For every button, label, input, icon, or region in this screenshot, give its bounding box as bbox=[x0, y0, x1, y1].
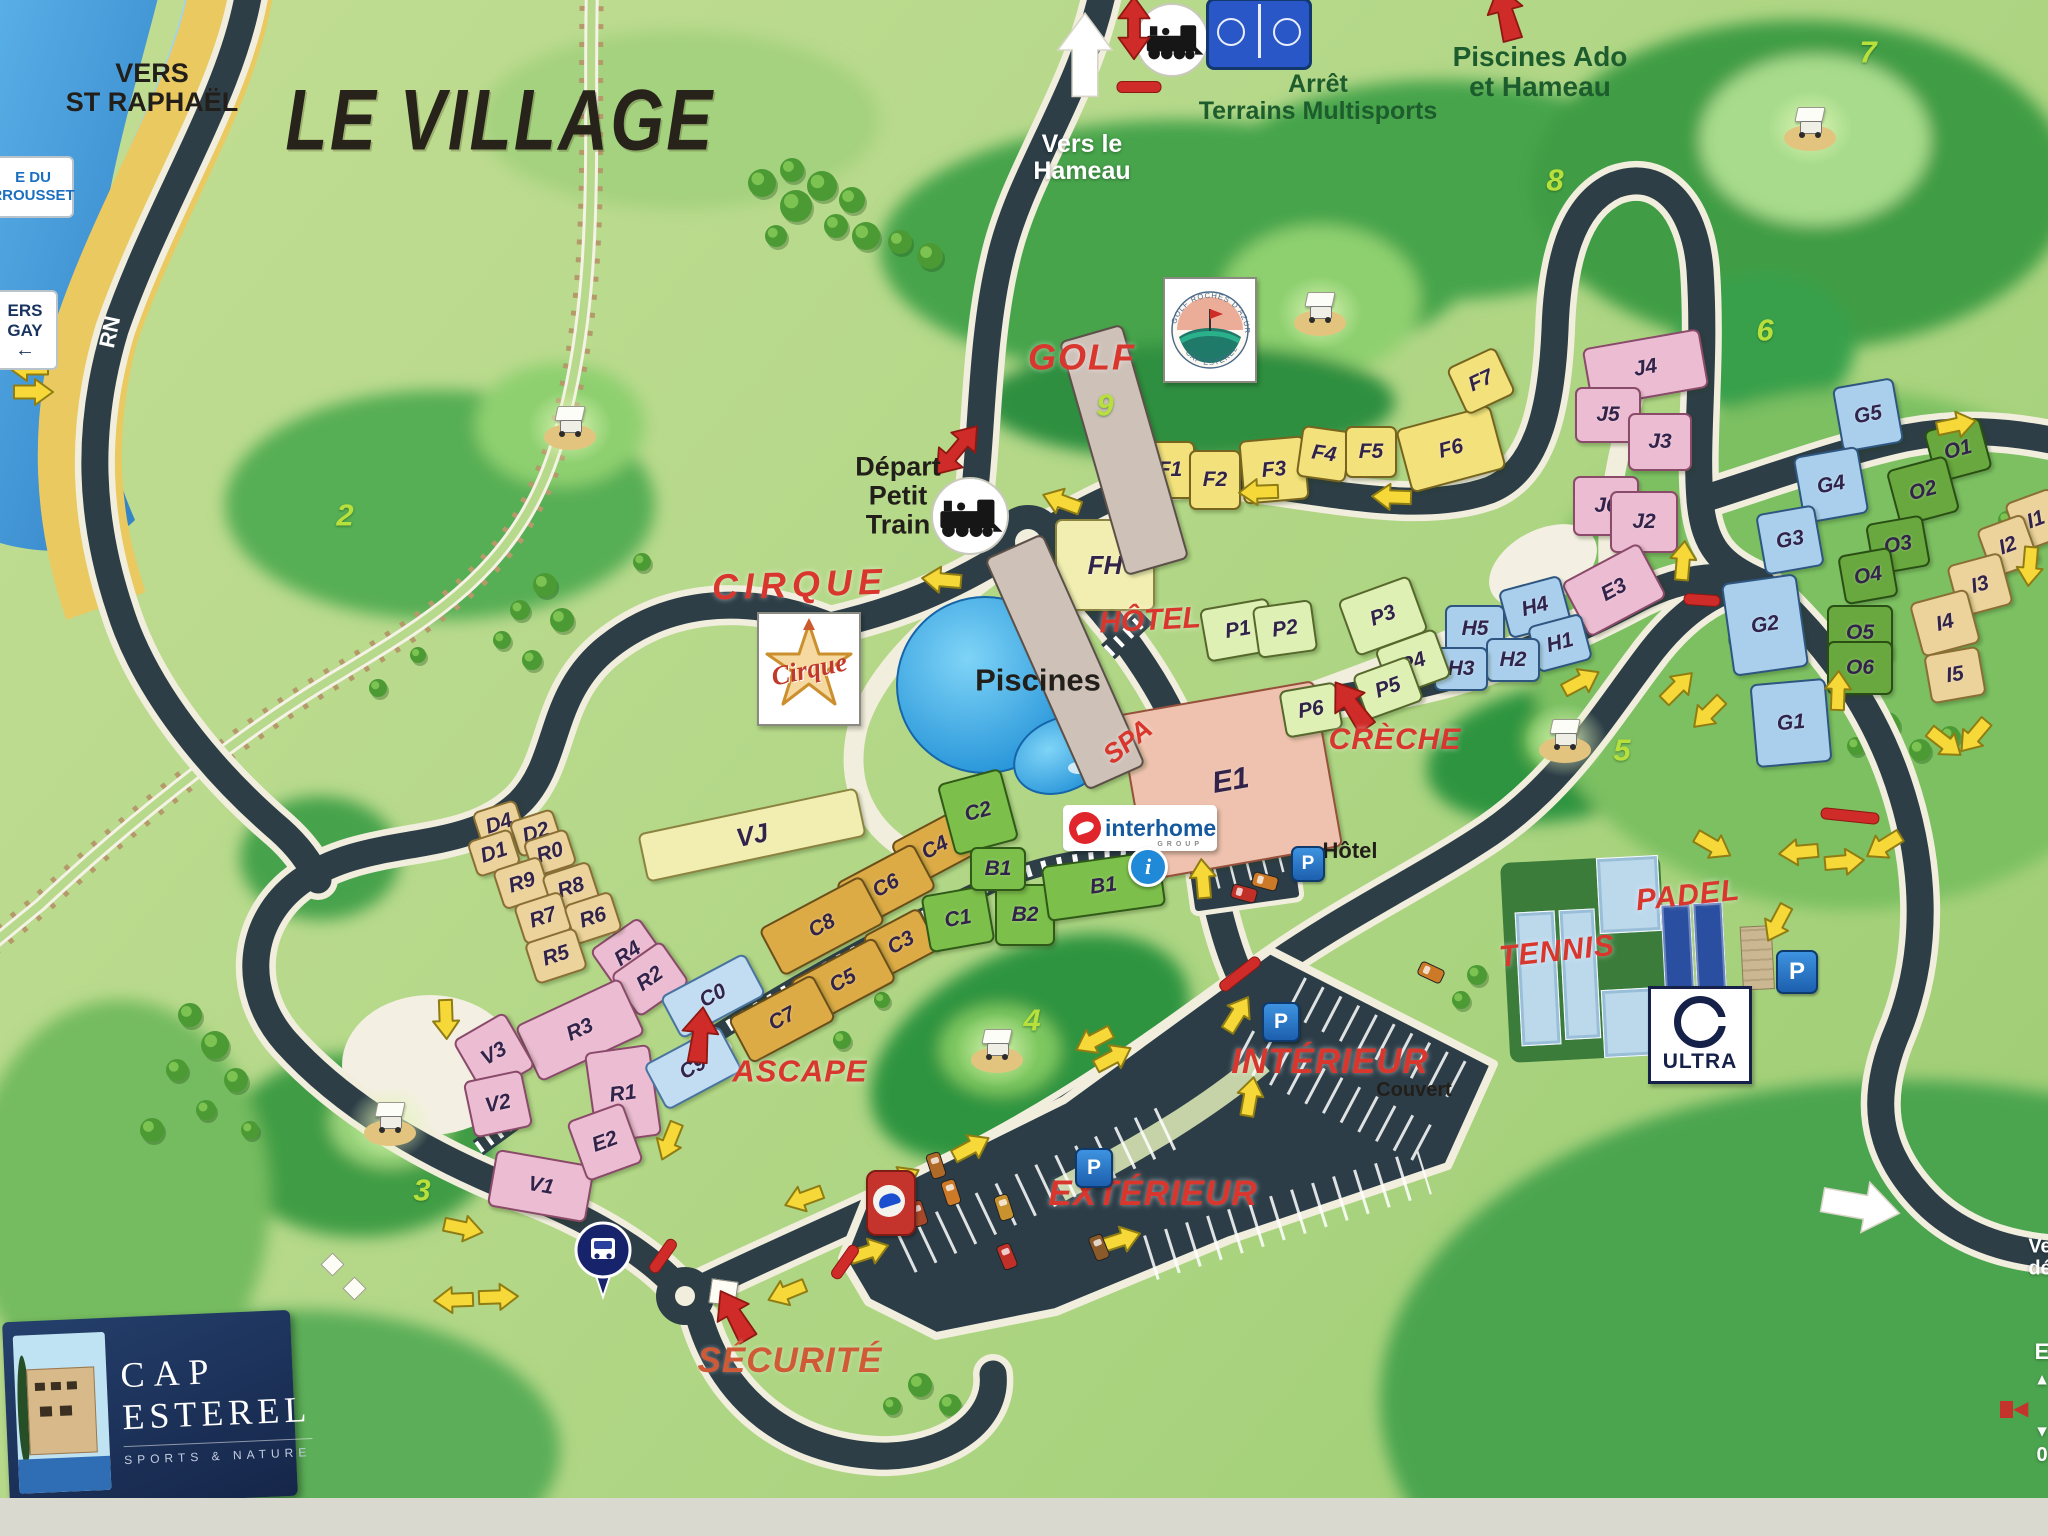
golf-hole-3: 3 bbox=[413, 1173, 430, 1206]
building-label: G2 bbox=[1749, 611, 1780, 639]
building-label: V1 bbox=[526, 1172, 555, 1200]
cap-esterel-logo: CAP ESTEREL SPORTS & NATURE bbox=[2, 1310, 298, 1508]
label-edge-up: ▲ bbox=[2034, 1371, 2048, 1388]
label-edge-zero: 0 bbox=[2036, 1445, 2047, 1467]
building-label: F2 bbox=[1203, 468, 1228, 492]
building-G5: G5 bbox=[1832, 377, 1905, 453]
label-couvert: Couvert bbox=[1376, 1080, 1452, 1102]
building-label: P1 bbox=[1223, 616, 1252, 644]
coast-sign-agay-text: ERS GAY bbox=[7, 301, 42, 340]
bus-stop-pin bbox=[576, 1223, 630, 1297]
building-label: H1 bbox=[1544, 628, 1576, 658]
interhome-text: interhome bbox=[1105, 818, 1216, 839]
coast-sign-carrousset-text: E DU RROUSSET bbox=[0, 169, 75, 205]
tree bbox=[780, 190, 814, 225]
coast-sign-carrousset: E DU RROUSSET bbox=[0, 156, 74, 218]
label-depart-petit-train: Départ Petit Train bbox=[855, 452, 941, 539]
tree bbox=[493, 631, 513, 652]
building-label: H4 bbox=[1519, 592, 1551, 622]
label-edge-down: ▼ bbox=[2034, 1423, 2048, 1440]
cap-esterel-line2: ESTEREL bbox=[121, 1387, 312, 1437]
building-label: V3 bbox=[477, 1037, 511, 1071]
building-label: C7 bbox=[765, 1002, 800, 1036]
building-label: B2 bbox=[1012, 903, 1039, 927]
golf-hole-2: 2 bbox=[336, 498, 353, 531]
building-label: I5 bbox=[1944, 662, 1965, 689]
building-I5: I5 bbox=[1923, 646, 1987, 705]
tree bbox=[550, 608, 576, 635]
building-label: C5 bbox=[826, 964, 861, 998]
tree bbox=[522, 650, 544, 673]
building-label: I3 bbox=[1968, 571, 1991, 599]
building-P2: P2 bbox=[1252, 599, 1319, 659]
info-icon: i bbox=[1128, 847, 1168, 887]
golf-hole-7: 7 bbox=[1859, 35, 1876, 68]
ultra-text: ULTRA bbox=[1663, 1050, 1738, 1074]
building-label: R3 bbox=[563, 1013, 597, 1046]
train-stop-hameau bbox=[1136, 4, 1208, 76]
golf-hole-5: 5 bbox=[1613, 733, 1630, 766]
building-label: R2 bbox=[632, 961, 668, 996]
golf-cart bbox=[362, 1100, 418, 1146]
building-label: C4 bbox=[918, 831, 953, 865]
building-label: J4 bbox=[1631, 354, 1658, 382]
info-letter: i bbox=[1145, 854, 1151, 880]
building-label: P5 bbox=[1372, 672, 1404, 703]
interhome-logo: interhome GROUP bbox=[1063, 805, 1217, 851]
building-G2: G2 bbox=[1721, 573, 1809, 677]
building-label: C2 bbox=[962, 797, 994, 827]
ultra-logo: ULTRA bbox=[1648, 986, 1752, 1084]
label-arret-terrains-multisports: Arrêt Terrains Multisports bbox=[1199, 71, 1437, 125]
building-label: R7 bbox=[527, 902, 560, 933]
photo-edge bbox=[0, 1498, 2048, 1536]
label-interieur: INTÉRIEUR bbox=[1231, 1043, 1429, 1081]
building-label: E1 bbox=[1209, 760, 1251, 800]
building-label: F4 bbox=[1310, 440, 1338, 467]
golf-hole-8: 8 bbox=[1546, 163, 1563, 196]
building-label: C8 bbox=[805, 909, 840, 943]
label-piscines: Piscines bbox=[975, 663, 1101, 696]
legend-red-icon: ◀ bbox=[2000, 1396, 2028, 1421]
building-label: C3 bbox=[884, 926, 919, 960]
tree bbox=[765, 225, 789, 250]
golf-club-logo: GOLF ROCHES D'AZUR CAP ESTEREL bbox=[1163, 277, 1257, 383]
tree bbox=[833, 1031, 853, 1052]
coast-sign-agay-arrow: ← bbox=[15, 341, 35, 359]
label-securite: SÉCURITÉ bbox=[698, 1342, 883, 1380]
label-cirque: CIRQUE bbox=[711, 563, 888, 608]
building-label: H3 bbox=[1448, 657, 1475, 681]
building-label: R1 bbox=[608, 1080, 638, 1108]
label-edge-vers: Ve dé bbox=[2028, 1236, 2048, 1279]
ultra-ring-icon bbox=[1674, 996, 1726, 1048]
building-label: J5 bbox=[1596, 403, 1619, 427]
building-label: D1 bbox=[478, 837, 511, 868]
building-label: P2 bbox=[1271, 615, 1300, 642]
interhome-bird-icon bbox=[1069, 812, 1101, 844]
building-label: G1 bbox=[1776, 710, 1806, 736]
label-creche: CRÈCHE bbox=[1329, 724, 1462, 756]
label-ascape: ASCAPE bbox=[732, 1054, 867, 1087]
label-golf: GOLF bbox=[1028, 339, 1136, 378]
building-label: I4 bbox=[1933, 609, 1956, 637]
building-label: F3 bbox=[1261, 457, 1288, 483]
building-label: P6 bbox=[1296, 696, 1325, 724]
building-label: H2 bbox=[1500, 648, 1527, 672]
tree bbox=[1467, 965, 1489, 988]
building-label: G3 bbox=[1774, 526, 1806, 555]
parking-icon: P bbox=[1776, 950, 1818, 994]
building-B1: B1 bbox=[970, 847, 1026, 891]
golf-cart bbox=[969, 1027, 1025, 1073]
cap-esterel-photo bbox=[13, 1332, 112, 1494]
building-label: O6 bbox=[1846, 656, 1874, 680]
coast-sign-agay: ERS GAY ← bbox=[0, 290, 58, 370]
terrain-drawing bbox=[0, 0, 2048, 1536]
security-barrier-icon bbox=[866, 1170, 916, 1236]
tennis-court bbox=[1515, 910, 1562, 1046]
resort-map: E DU RROUSSET ERS GAY ← GOLF ROCHES D'AZ… bbox=[0, 0, 2048, 1536]
cirque-logo: Cirque bbox=[757, 612, 861, 726]
building-H2: H2 bbox=[1486, 638, 1540, 682]
label-piscines-ado-et-hameau: Piscines Ado et Hameau bbox=[1453, 42, 1628, 102]
building-label: C9 bbox=[676, 1051, 711, 1085]
building-J2: J2 bbox=[1610, 491, 1678, 553]
building-V2: V2 bbox=[463, 1069, 534, 1138]
legend-arrow-left: ◀ bbox=[2013, 1398, 2028, 1420]
building-label: O2 bbox=[1906, 476, 1939, 506]
roundabout-securite bbox=[665, 1276, 705, 1316]
label-edge-e: E bbox=[2035, 1340, 2048, 1364]
building-label: R9 bbox=[506, 867, 539, 898]
golf-cart bbox=[542, 404, 598, 450]
label-hotel: HÔTEL bbox=[1098, 602, 1201, 640]
tree bbox=[908, 1373, 934, 1400]
building-label: E2 bbox=[589, 1126, 621, 1157]
tree bbox=[410, 647, 428, 666]
building-label: C6 bbox=[869, 869, 904, 903]
building-C1: C1 bbox=[920, 885, 995, 954]
building-label: O4 bbox=[1852, 562, 1884, 591]
building-label: H5 bbox=[1462, 617, 1489, 641]
label-vers-le-hameau: Vers le Hameau bbox=[1033, 131, 1130, 185]
building-label: P3 bbox=[1367, 600, 1399, 631]
building-label: J3 bbox=[1648, 430, 1671, 454]
interhome-group-text: GROUP bbox=[1157, 841, 1203, 848]
golf-hole-9: 9 bbox=[1096, 388, 1113, 421]
building-label: F7 bbox=[1465, 365, 1497, 397]
tree bbox=[883, 1397, 903, 1418]
building-O4: O4 bbox=[1837, 547, 1899, 606]
tree bbox=[852, 222, 882, 253]
parking-icon: P bbox=[1262, 1002, 1300, 1042]
tree bbox=[839, 187, 867, 216]
building-label: B1 bbox=[1088, 872, 1118, 900]
multisport-court-icon bbox=[1206, 0, 1312, 70]
building-label: G4 bbox=[1815, 471, 1847, 500]
building-label: G5 bbox=[1852, 401, 1884, 430]
tree bbox=[1452, 991, 1472, 1012]
building-label: V2 bbox=[483, 1090, 513, 1119]
train-stop-depart bbox=[932, 478, 1008, 554]
parking-icon: P bbox=[1291, 846, 1325, 882]
building-label: C0 bbox=[696, 979, 731, 1013]
golf-hole-6: 6 bbox=[1756, 313, 1773, 346]
building-label: C1 bbox=[943, 905, 974, 933]
tree bbox=[369, 679, 389, 700]
building-J3: J3 bbox=[1628, 413, 1692, 471]
golf-cart bbox=[1292, 290, 1348, 336]
building-F5: F5 bbox=[1345, 426, 1397, 478]
building-label: E3 bbox=[1597, 573, 1631, 606]
guard-hut bbox=[708, 1278, 738, 1307]
parking-icon: P bbox=[1075, 1148, 1113, 1188]
building-label: B1 bbox=[985, 857, 1012, 881]
building-label: R5 bbox=[540, 940, 573, 971]
tennis-court bbox=[1559, 908, 1602, 1040]
stone-wall bbox=[1740, 925, 1775, 991]
building-label: F6 bbox=[1436, 434, 1466, 464]
golf-hole-4: 4 bbox=[1023, 1003, 1040, 1036]
building-F2: F2 bbox=[1189, 450, 1241, 510]
label-parking-hotel: Hôtel bbox=[1323, 839, 1378, 863]
cap-esterel-subtitle: SPORTS & NATURE bbox=[124, 1444, 313, 1466]
tree bbox=[824, 214, 850, 241]
building-F4: F4 bbox=[1296, 425, 1353, 483]
building-label: F5 bbox=[1359, 440, 1384, 464]
building-G3: G3 bbox=[1755, 504, 1825, 575]
label-vers-st-raphael: VERS ST RAPHAËL bbox=[66, 59, 239, 117]
building-label: FH bbox=[1088, 550, 1123, 581]
label-title: LE VILLAGE bbox=[285, 75, 714, 168]
golf-cart bbox=[1782, 105, 1838, 151]
building-O6: O6 bbox=[1827, 641, 1893, 695]
tree bbox=[633, 553, 653, 574]
building-G1: G1 bbox=[1749, 678, 1832, 768]
golf-cart bbox=[1537, 717, 1593, 763]
building-label: R6 bbox=[577, 902, 610, 933]
building-label: J2 bbox=[1632, 510, 1655, 534]
building-label: VJ bbox=[733, 817, 771, 854]
tree bbox=[874, 992, 892, 1011]
